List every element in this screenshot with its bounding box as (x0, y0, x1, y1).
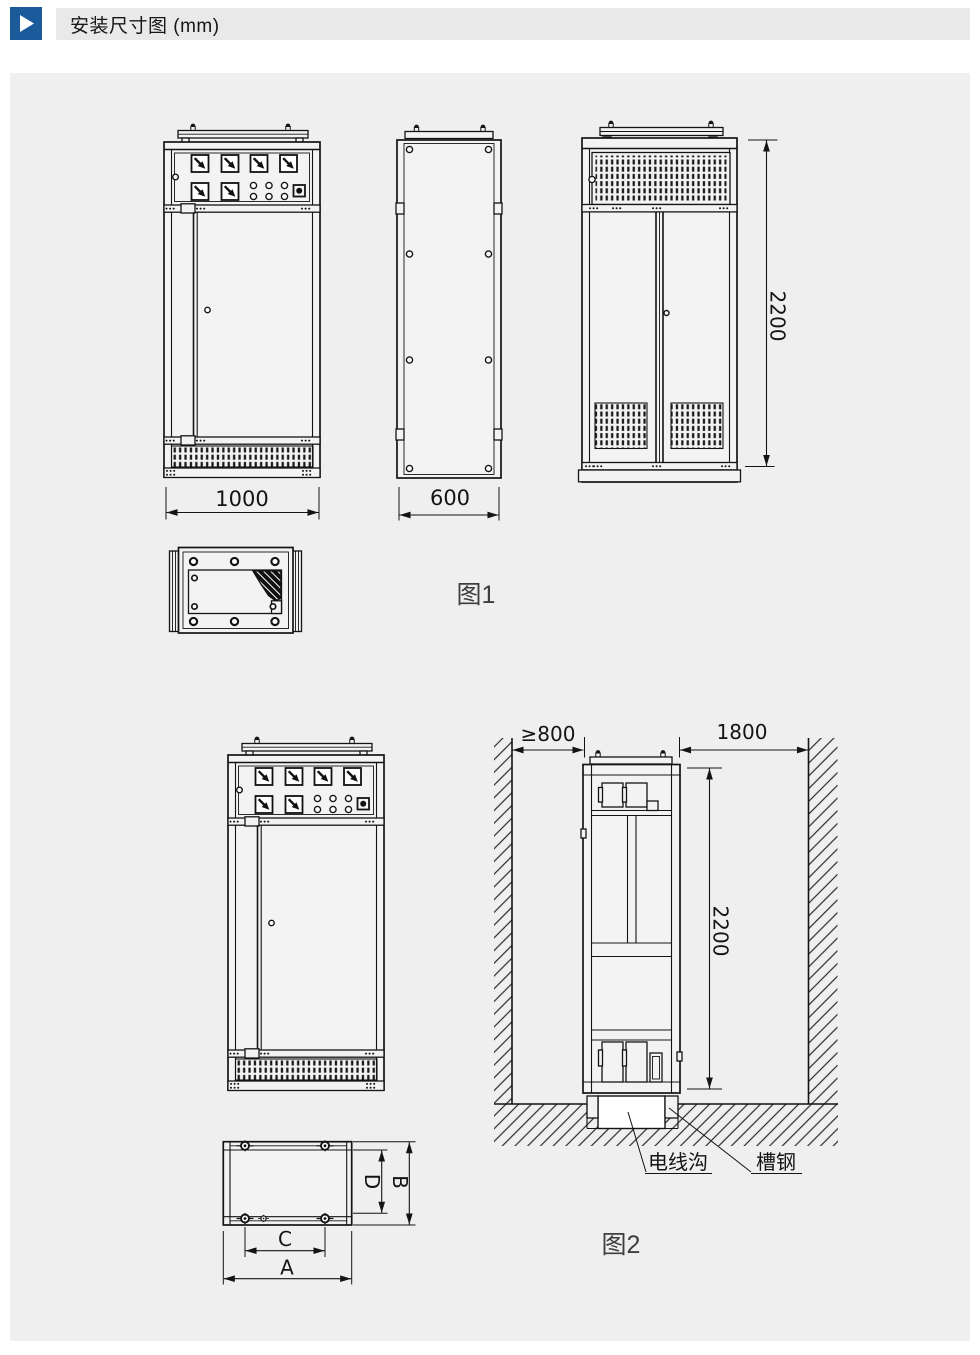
dim-base-D: D (360, 1174, 384, 1189)
wire-trench-label: 电线沟 (648, 1151, 708, 1174)
figure2-caption: 图2 (602, 1231, 641, 1259)
figure1-front-view (164, 124, 320, 478)
technical-drawing: 1000 600 (0, 0, 980, 1355)
left-wall-hatch (494, 738, 512, 1104)
dim-base-C: C (278, 1227, 292, 1251)
dim-width-1000: 1000 (215, 487, 268, 511)
dim-right-clearance: 1800 (717, 720, 768, 744)
figure1-height-dimension: 2200 (745, 140, 790, 467)
figure1-top-view (170, 548, 302, 634)
figure1-width-dimension: 1000 (166, 487, 319, 520)
right-wall-hatch (809, 738, 838, 1104)
channel-steel-label: 槽钢 (756, 1151, 796, 1174)
dim-left-clearance: ≥800 (521, 722, 576, 746)
figure2: D B C A (223, 720, 838, 1285)
dim-height-2200: 2200 (766, 291, 790, 342)
figure1-back-view (579, 121, 741, 482)
page: 安装尺寸图 (mm) (0, 0, 980, 1355)
dim-base-B: B (388, 1175, 412, 1189)
figure1-side-view (396, 125, 502, 478)
channel-steel-right (665, 1096, 678, 1118)
figure2-base-plan-view (223, 1140, 351, 1225)
figure1-caption: 图1 (457, 581, 496, 609)
figure1-depth-dimension: 600 (399, 486, 499, 521)
dim-install-height: 2200 (709, 906, 733, 957)
dim-base-A: A (280, 1256, 294, 1280)
dim-depth-600: 600 (430, 486, 470, 510)
figure1: 1000 600 (164, 121, 790, 633)
figure2-install-view (494, 738, 838, 1174)
figure2-front-view (228, 737, 384, 1091)
channel-steel-left (587, 1096, 598, 1118)
